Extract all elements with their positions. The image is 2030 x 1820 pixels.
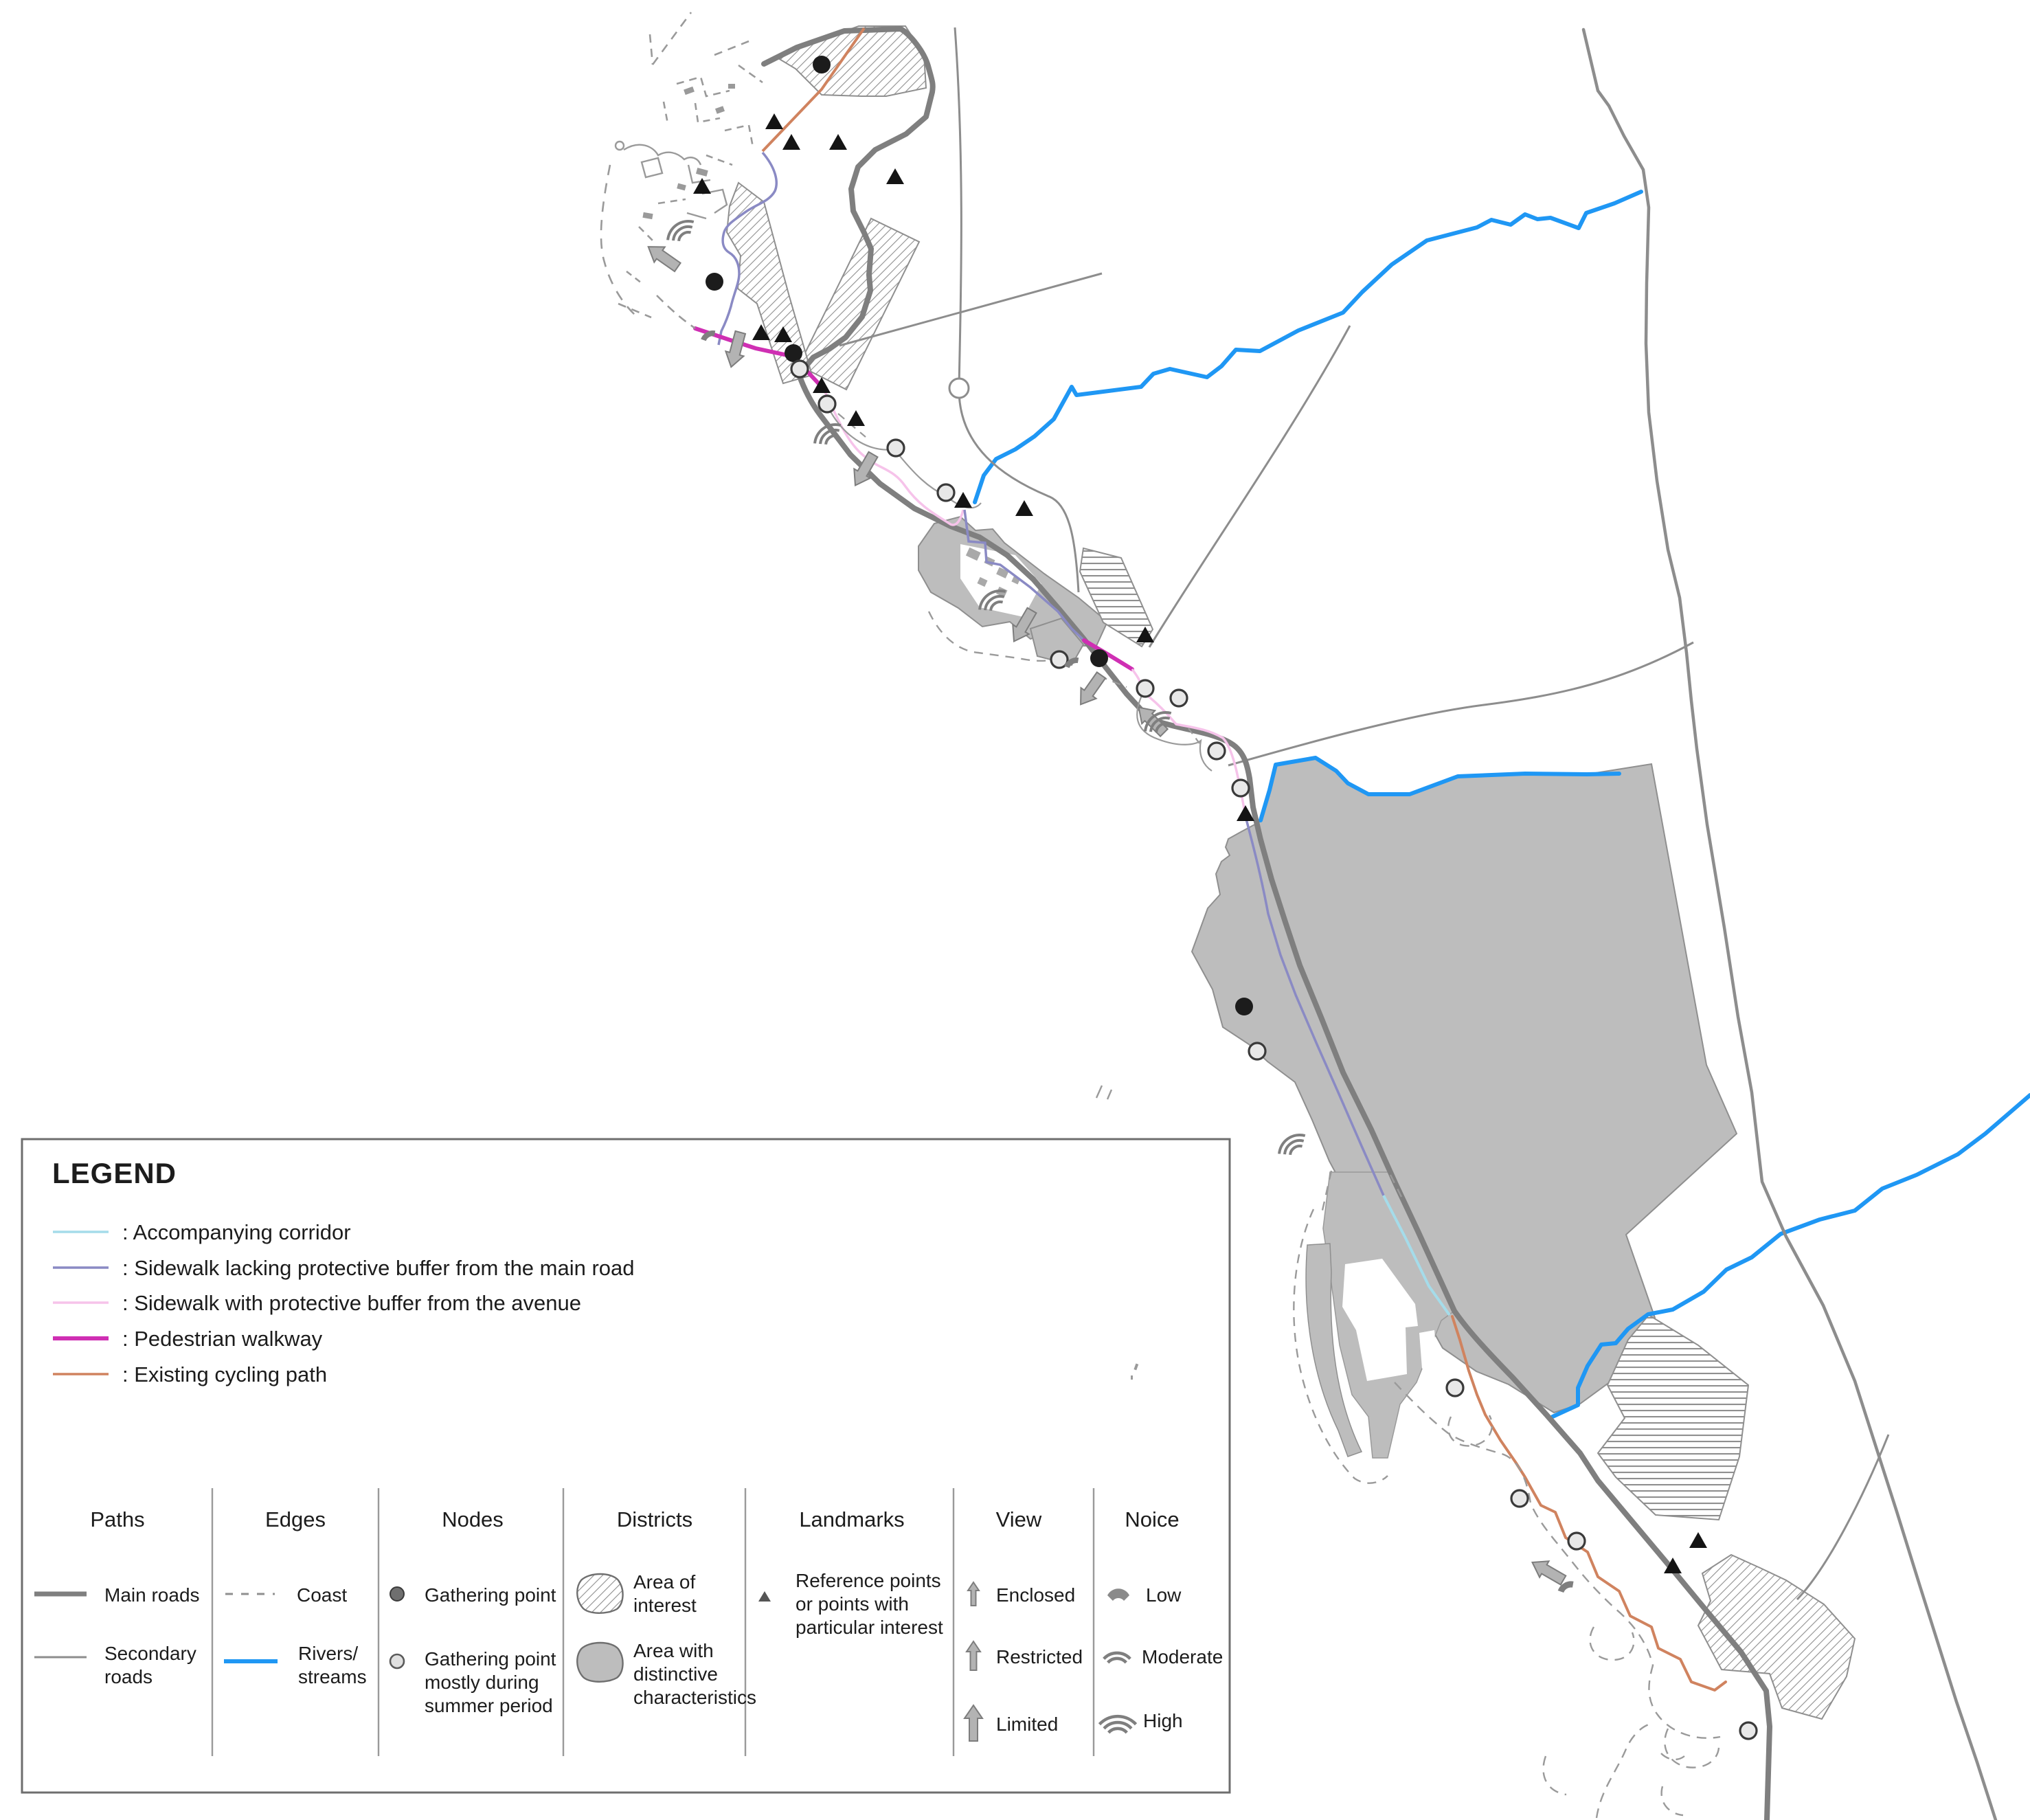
svg-text:summer period: summer period: [425, 1695, 553, 1716]
svg-text:LEGEND: LEGEND: [52, 1157, 177, 1189]
svg-text:Low: Low: [1146, 1584, 1182, 1606]
svg-text:interest: interest: [633, 1595, 697, 1616]
svg-text:Noice: Noice: [1125, 1507, 1179, 1531]
svg-text:Gathering point: Gathering point: [425, 1648, 556, 1670]
svg-text:Main roads: Main roads: [104, 1584, 200, 1606]
svg-text:Coast: Coast: [297, 1584, 347, 1606]
svg-text:or points with: or points with: [796, 1593, 909, 1615]
svg-text:: Pedestrian walkway: : Pedestrian walkway: [122, 1327, 323, 1351]
svg-text:Paths: Paths: [90, 1507, 144, 1531]
svg-text:: Accompanying corridor: : Accompanying corridor: [122, 1220, 351, 1244]
svg-text:characteristics: characteristics: [633, 1687, 756, 1708]
svg-text:Moderate: Moderate: [1142, 1646, 1223, 1667]
svg-text:Rivers/: Rivers/: [298, 1643, 358, 1664]
svg-text:High: High: [1143, 1710, 1183, 1731]
svg-text:Districts: Districts: [617, 1507, 692, 1531]
svg-text:: Sidewalk lacking protective: : Sidewalk lacking protective buffer fro…: [122, 1256, 635, 1280]
svg-text:Edges: Edges: [265, 1507, 326, 1531]
svg-text:Gathering point: Gathering point: [425, 1584, 556, 1606]
svg-text:Restricted: Restricted: [996, 1646, 1083, 1667]
svg-text:View: View: [996, 1507, 1042, 1531]
svg-text:Nodes: Nodes: [442, 1507, 504, 1531]
svg-text:mostly during: mostly during: [425, 1672, 539, 1693]
svg-text:roads: roads: [104, 1666, 153, 1687]
svg-text:distinctive: distinctive: [633, 1663, 718, 1685]
svg-text:Area with: Area with: [633, 1640, 714, 1661]
svg-text:Reference points: Reference points: [796, 1570, 941, 1591]
svg-text:: Sidewalk with protective buf: : Sidewalk with protective buffer from t…: [122, 1291, 581, 1315]
svg-text:particular interest: particular interest: [796, 1617, 943, 1638]
svg-text:streams: streams: [298, 1666, 367, 1687]
svg-text:Area of: Area of: [633, 1571, 695, 1593]
svg-text:Landmarks: Landmarks: [799, 1507, 904, 1531]
svg-text:Secondary: Secondary: [104, 1643, 196, 1664]
svg-text:: Existing cycling path: : Existing cycling path: [122, 1362, 327, 1386]
svg-text:Enclosed: Enclosed: [996, 1584, 1075, 1606]
svg-text:Limited: Limited: [996, 1714, 1058, 1735]
